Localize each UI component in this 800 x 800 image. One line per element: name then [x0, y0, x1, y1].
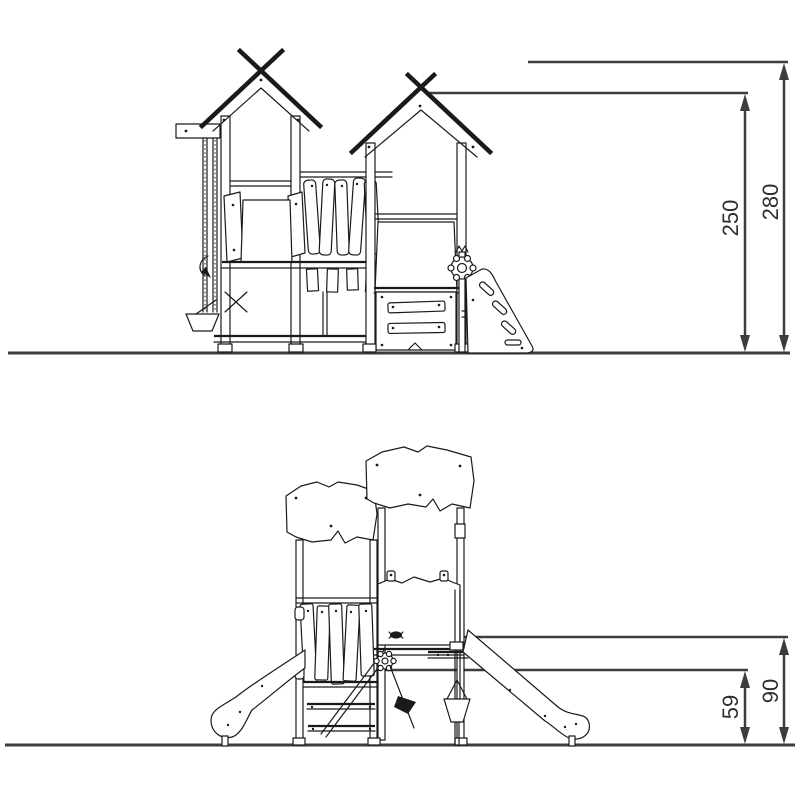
slat-panel [376, 292, 456, 350]
dimension-label-250: 250 [718, 200, 743, 237]
dimension-label-280: 280 [758, 184, 783, 221]
left-tower [202, 51, 320, 352]
right-slide [463, 630, 589, 746]
ramp-panel [241, 200, 292, 262]
upper-drawing: 280 250 [8, 51, 790, 353]
left-canopy [286, 482, 377, 543]
playground-elevation-drawing: 280 250 [0, 0, 800, 800]
bucket [186, 314, 219, 331]
plank-wall [295, 598, 378, 684]
dimension-label-59: 59 [718, 695, 743, 719]
climbing-panel [462, 269, 533, 353]
left-slide [211, 650, 305, 746]
digger-arm [390, 666, 416, 728]
right-canopy [366, 446, 474, 511]
technical-drawing-canvas: 280 250 [0, 0, 800, 800]
roof-cross-left [202, 51, 320, 131]
lower-drawing: 90 59 [5, 446, 795, 746]
sand-hoist [176, 124, 220, 331]
dimension-label-90: 90 [758, 679, 783, 703]
dimension-280: 280 [528, 62, 789, 352]
